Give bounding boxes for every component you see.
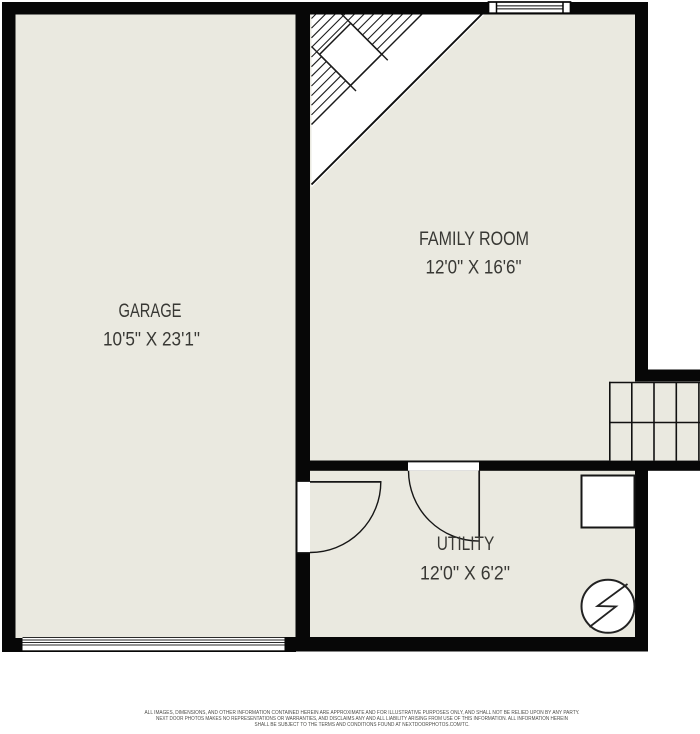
svg-text:SHALL BE SUBJECT TO THE TERMS: SHALL BE SUBJECT TO THE TERMS AND CONDIT… xyxy=(255,722,470,728)
svg-text:FAMILY ROOM: FAMILY ROOM xyxy=(419,229,529,250)
svg-text:12'0" X 16'6": 12'0" X 16'6" xyxy=(426,258,522,279)
svg-text:UTILITY: UTILITY xyxy=(437,534,495,555)
svg-text:12'0" X 6'2": 12'0" X 6'2" xyxy=(420,564,510,585)
svg-text:10'5" X 23'1": 10'5" X 23'1" xyxy=(103,330,200,351)
svg-text:GARAGE: GARAGE xyxy=(119,301,182,322)
